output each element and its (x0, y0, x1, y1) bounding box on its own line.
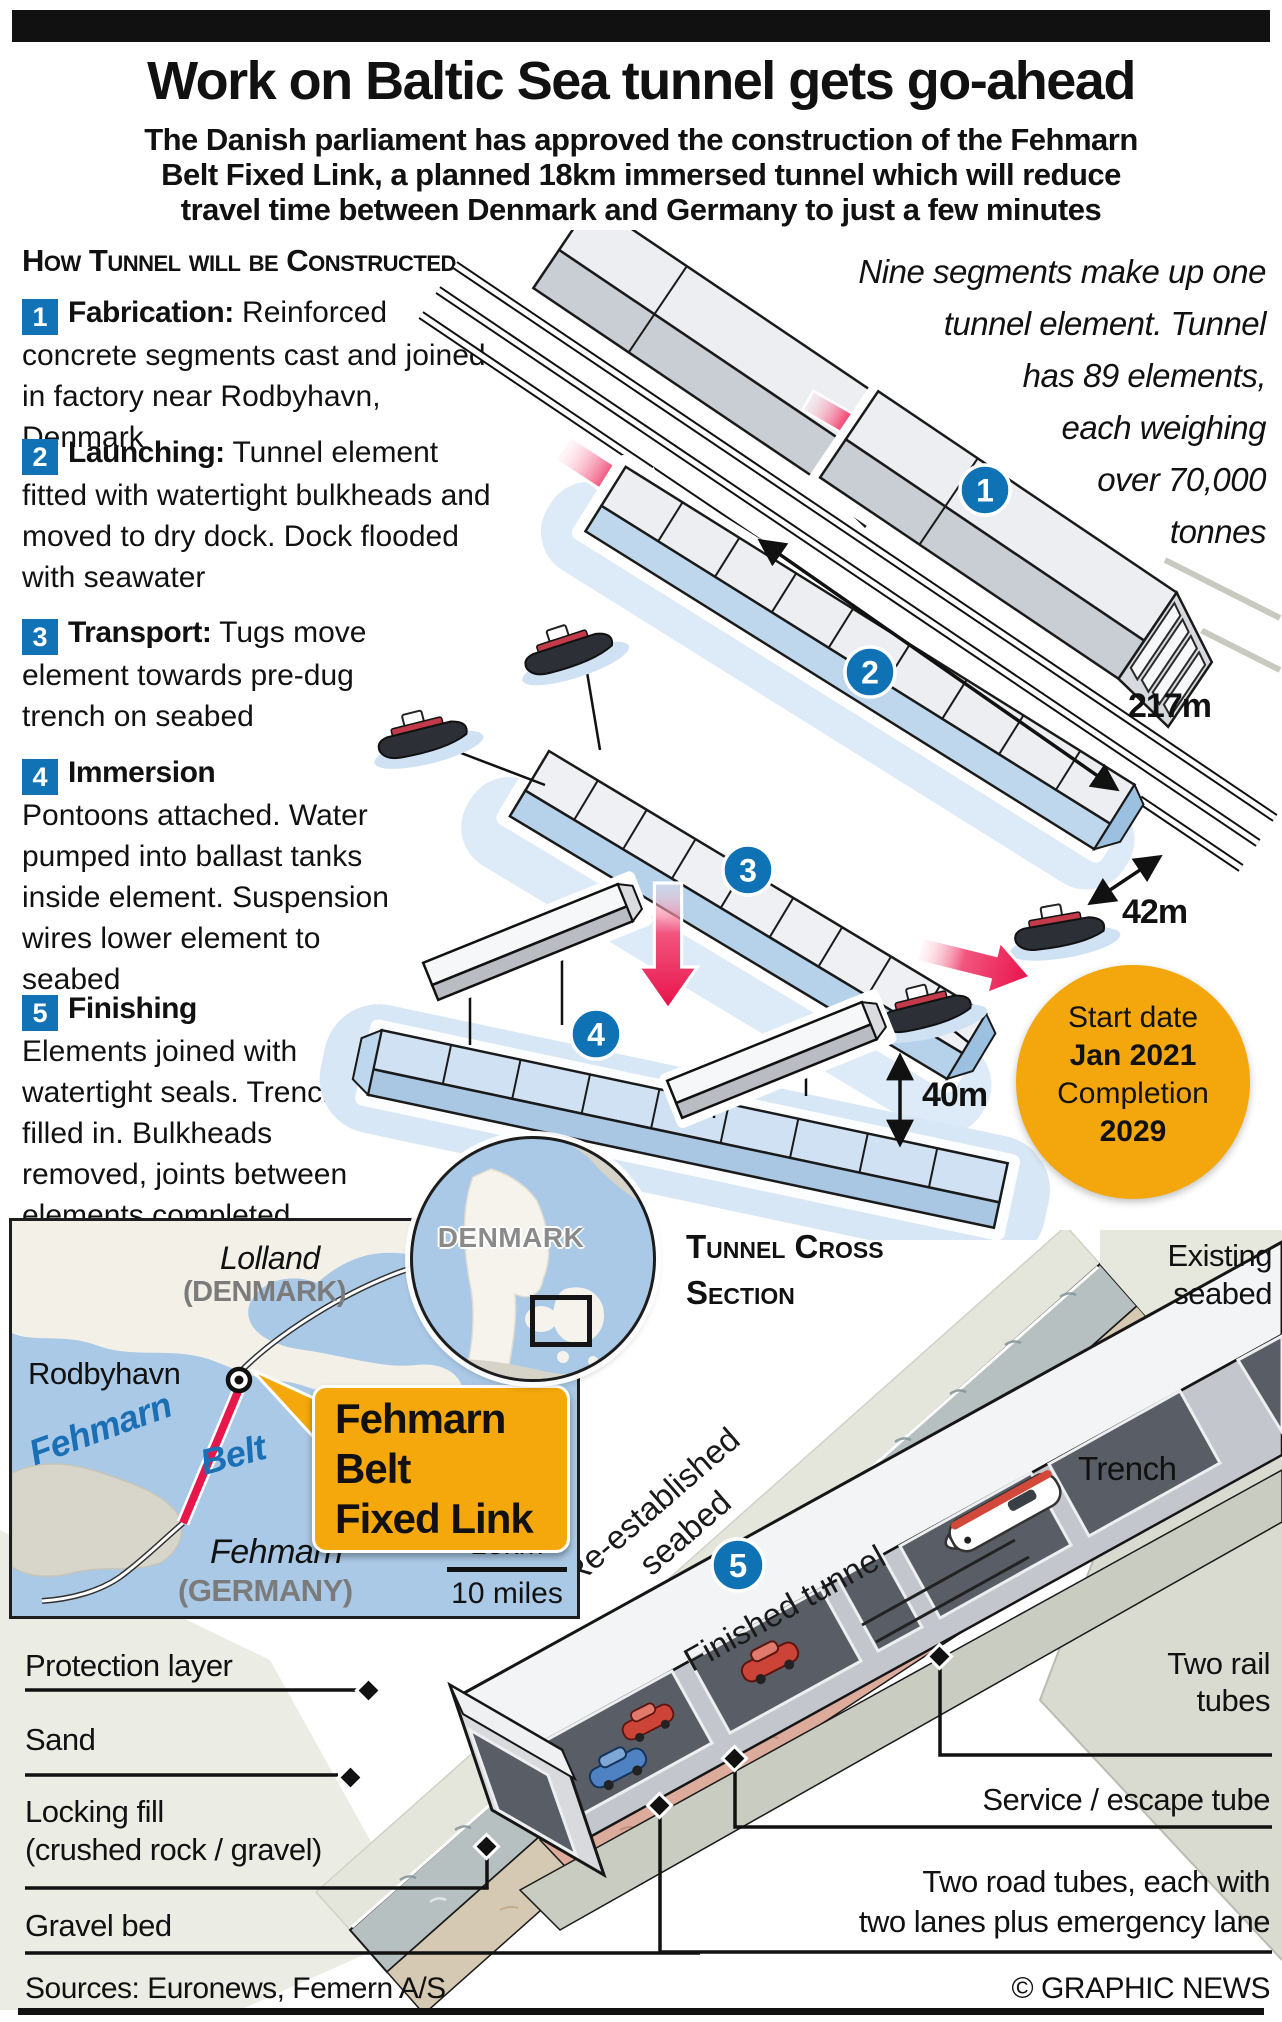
denmark-inset-label: DENMARK (425, 1222, 597, 1254)
cross-section-title: Tunnel Cross Section (686, 1224, 884, 1316)
protection-layer-label: Protection layer (25, 1648, 232, 1684)
credit-line: © GRAPHIC NEWS (1012, 1972, 1270, 2006)
scale-miles: 10 miles (451, 1577, 563, 1610)
subtitle-line: The Danish parliament has approved the c… (144, 122, 1138, 157)
tow-rope (586, 666, 600, 750)
road-line2: two lanes plus emergency lane (859, 1904, 1270, 1939)
subtitle-line: Belt Fixed Link, a planned 18km immersed… (161, 157, 1121, 192)
depth-dimension-label: 40m (922, 1076, 987, 1115)
rail-line1: Two rail (1167, 1646, 1270, 1681)
scale-bar (447, 1567, 567, 1572)
step-5-marker-number: 5 (729, 1547, 747, 1584)
schedule-badge: Start date Jan 2021 Completion 2029 (1016, 965, 1250, 1199)
subtitle: The Danish parliament has approved the c… (0, 122, 1282, 227)
fehmarn-country-label: (GERMANY) (178, 1573, 353, 1609)
gravel-bed-label: Gravel bed (25, 1908, 172, 1944)
sand-label: Sand (25, 1722, 95, 1758)
infographic-page: Work on Baltic Sea tunnel gets go-ahead … (0, 0, 1282, 2022)
step-2-marker-number: 2 (861, 655, 879, 691)
callout-line1: Fehmarn Belt (335, 1395, 505, 1492)
service-tube-label: Service / escape tube (982, 1782, 1270, 1818)
road-line1: Two road tubes, each with (922, 1864, 1270, 1899)
width-dimension-label: 42m (1122, 893, 1187, 932)
step-4-marker-number: 4 (587, 1017, 605, 1053)
step-3-marker-number: 3 (739, 853, 757, 889)
completion-value: 2029 (1100, 1115, 1167, 1148)
page-title: Work on Baltic Sea tunnel gets go-ahead (0, 50, 1282, 112)
fixed-link-callout: Fehmarn Belt Fixed Link (312, 1385, 570, 1553)
existing-line2: seabed (1173, 1276, 1272, 1311)
subtitle-line: travel time between Denmark and Germany … (181, 192, 1101, 227)
locking-line1: Locking fill (25, 1794, 164, 1829)
locking-fill-label: Locking fill (crushed rock / gravel) (25, 1793, 322, 1869)
fehmarn-landmass (12, 1464, 182, 1576)
road-tubes-label: Two road tubes, each with two lanes plus… (859, 1862, 1270, 1942)
lolland-country-label: (DENMARK) (183, 1276, 346, 1309)
lolland-label: Lolland (220, 1240, 320, 1277)
inset-focus-box (530, 1295, 592, 1347)
existing-seabed-label: Existing seabed (1167, 1237, 1272, 1313)
bottom-rule (18, 2008, 1264, 2015)
sources-line: Sources: Euronews, Femern A/S (25, 1972, 446, 2006)
existing-line1: Existing (1167, 1238, 1272, 1273)
cross-section-title-line1: Tunnel Cross (686, 1228, 884, 1265)
start-value: Jan 2021 (1070, 1039, 1197, 1072)
rail-line2: tubes (1197, 1683, 1270, 1718)
locking-line2: (crushed rock / gravel) (25, 1832, 322, 1867)
top-rule (12, 10, 1270, 42)
completion-label: Completion (1057, 1077, 1209, 1110)
cross-section-title-line2: Section (686, 1274, 795, 1311)
trench-label: Trench (1078, 1450, 1176, 1488)
callout-line2: Fixed Link (335, 1495, 533, 1542)
step-1-marker-number: 1 (976, 473, 994, 509)
small-island (557, 1351, 569, 1363)
length-dimension-label: 217m (1128, 687, 1211, 726)
start-label: Start date (1068, 1001, 1198, 1034)
rail-tubes-label: Two rail tubes (1167, 1645, 1270, 1719)
